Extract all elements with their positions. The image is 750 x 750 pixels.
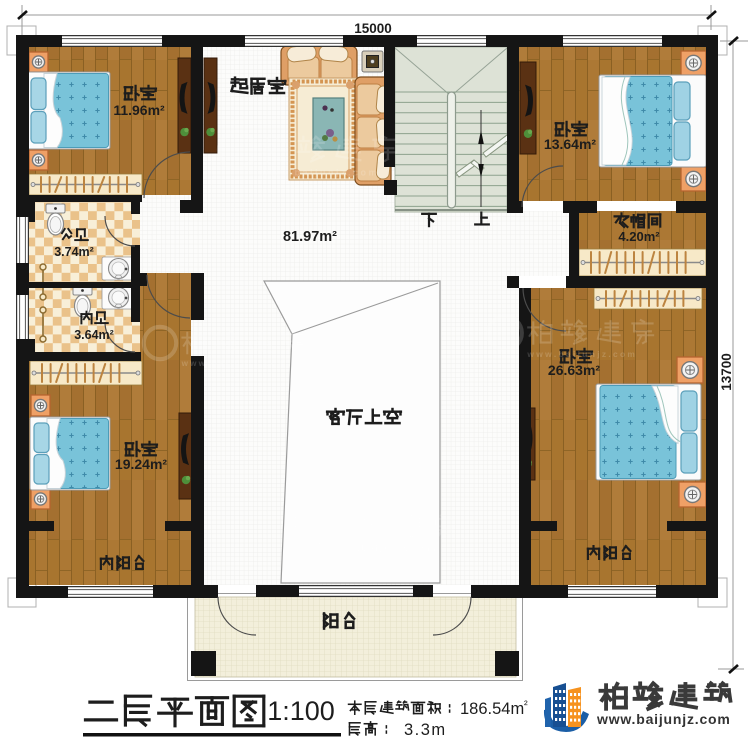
svg-text:²: ² (524, 699, 528, 711)
svg-text:26.63m²: 26.63m² (548, 362, 600, 378)
svg-text:w w w . b a i j u n j z . c o: w w w . b a i j u n j z . c o m (181, 359, 286, 368)
svg-text:w w w . b a i j u n j z . c o: w w w . b a i j u n j z . c o m (526, 349, 635, 359)
svg-text:w w w . b a i j u n j z . c o: w w w . b a i j u n j z . c o m (331, 544, 436, 553)
svg-text:186.54m: 186.54m (460, 700, 524, 718)
svg-text:81.97m²: 81.97m² (283, 229, 337, 245)
svg-text:3.3m: 3.3m (404, 721, 447, 739)
svg-text:3.74m²: 3.74m² (54, 245, 94, 259)
svg-text:11.96m²: 11.96m² (113, 102, 165, 118)
svg-text:www.baijunjz.com: www.baijunjz.com (596, 711, 731, 727)
svg-text:13.64m²: 13.64m² (544, 136, 596, 152)
svg-text:19.24m²: 19.24m² (115, 456, 167, 472)
svg-text:13700: 13700 (719, 353, 734, 391)
svg-text:4.20m²: 4.20m² (618, 229, 660, 244)
svg-text:1:100: 1:100 (267, 696, 335, 726)
svg-text:15000: 15000 (354, 21, 392, 36)
svg-text:w w w . b a i j u n j z . c o: w w w . b a i j u n j z . c o m (260, 168, 377, 178)
svg-text:3.64m²: 3.64m² (74, 328, 114, 342)
